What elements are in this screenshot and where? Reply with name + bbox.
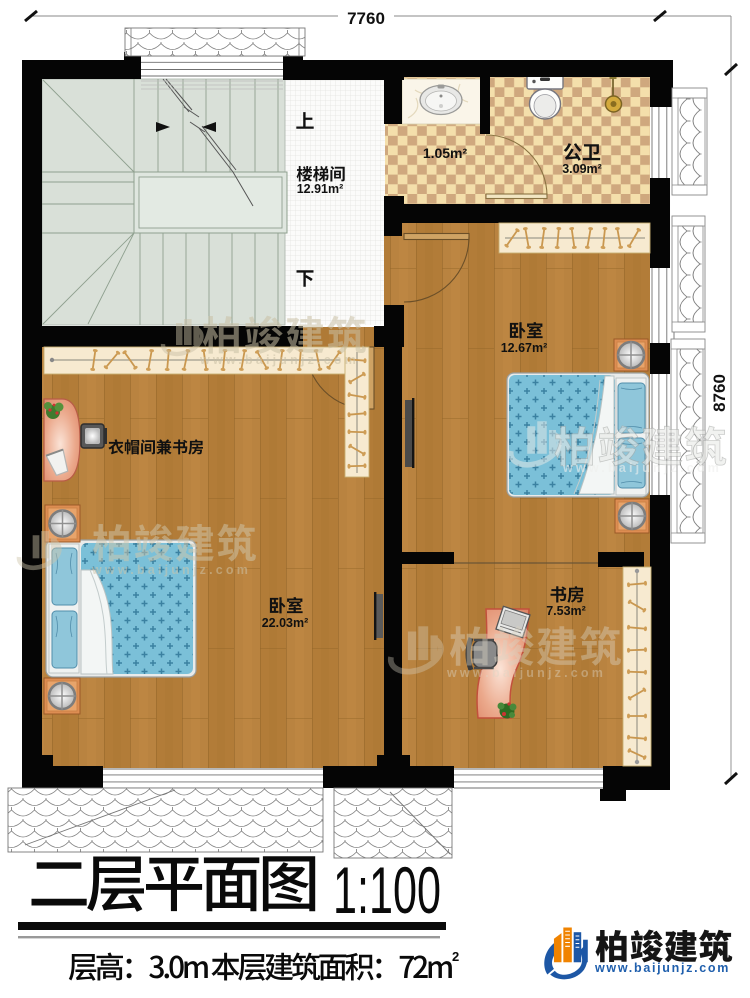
svg-text:8760: 8760	[710, 374, 729, 412]
svg-text:2: 2	[452, 949, 459, 964]
svg-text:7.53m²: 7.53m²	[546, 604, 586, 618]
svg-text:www.baijunjz.com: www.baijunjz.com	[594, 961, 730, 975]
svg-text:www.baijunjz.com: www.baijunjz.com	[446, 666, 606, 680]
svg-text:www.baijunjz.com: www.baijunjz.com	[91, 563, 251, 577]
svg-text:22.03m²: 22.03m²	[262, 616, 309, 630]
svg-text:12.67m²: 12.67m²	[501, 341, 548, 355]
svg-text:1.05m²: 1.05m²	[423, 145, 468, 161]
svg-text:3.09m²: 3.09m²	[562, 162, 602, 176]
svg-text:1:100: 1:100	[333, 853, 441, 927]
svg-text:12.91m²: 12.91m²	[297, 182, 344, 196]
svg-text:www.baijunjz.com: www.baijunjz.com	[199, 353, 359, 367]
svg-text:www.baijunjz.com: www.baijunjz.com	[562, 461, 722, 475]
svg-text:7760: 7760	[347, 9, 385, 28]
